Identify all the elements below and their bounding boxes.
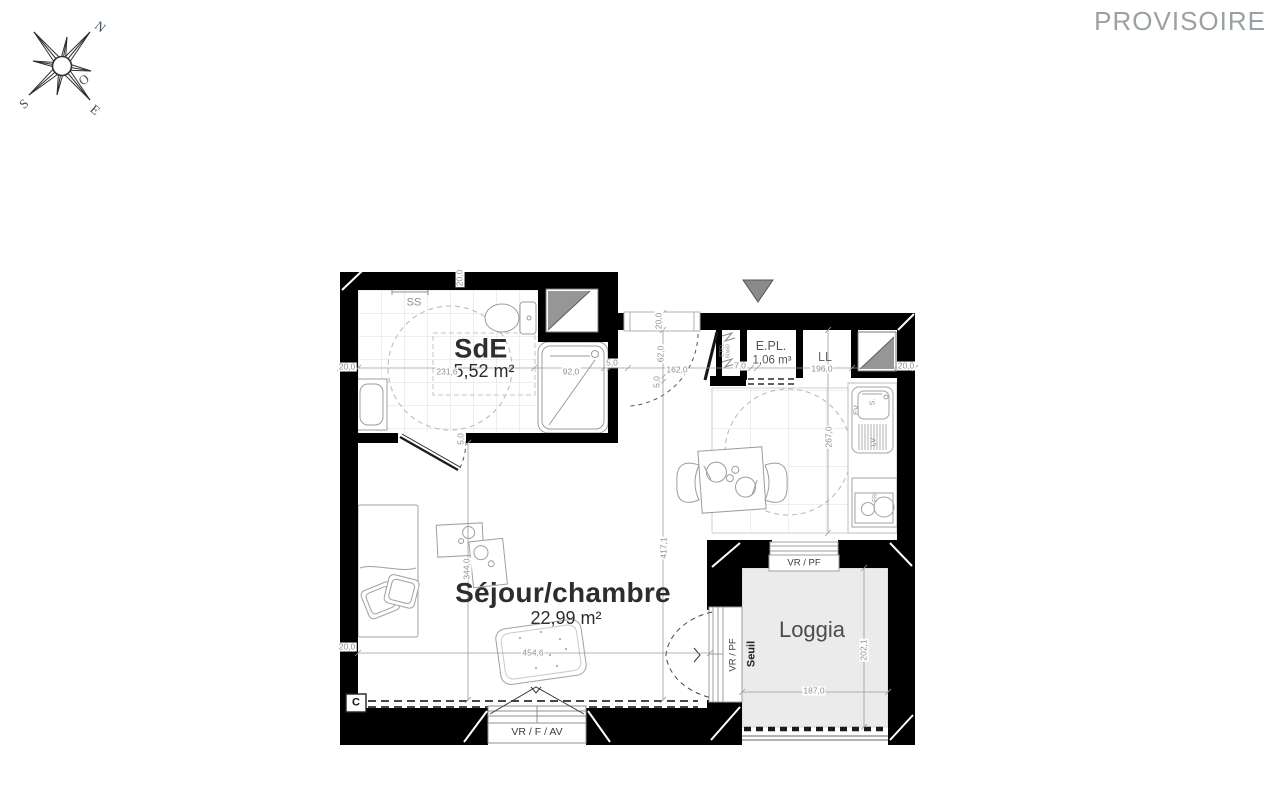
sde-area-label: 5,52 m²: [453, 362, 514, 380]
dim-entry-depth: 62,0: [657, 345, 666, 364]
sejour-room-label: Séjour/chambre: [455, 579, 671, 607]
dim-loggia-width: 187,0: [802, 687, 825, 696]
dim-kitchen-width: 196,0: [810, 365, 833, 374]
dim-shower-width: 92,0: [562, 368, 581, 377]
epl-label: E.PL.: [756, 340, 787, 353]
sink-label: EV: [852, 405, 860, 415]
sejour-area-label: 22,99 m²: [530, 609, 601, 627]
duct-sde: [546, 289, 598, 332]
threshold-label: Seuil: [747, 641, 758, 667]
loggia-window-label: VR / PF: [787, 558, 820, 568]
epl-front-dashes: [748, 379, 796, 384]
dining-table: [698, 447, 766, 513]
dim-shower-gap: 5,0: [605, 359, 619, 368]
page: { "watermark": "PROVISOIRE", "compass": …: [0, 0, 1276, 800]
shower: [538, 342, 608, 433]
bed: [358, 505, 420, 637]
dim-hall-top: 20,0: [655, 312, 664, 331]
dim-sejour-left: 20,0: [338, 643, 357, 652]
dim-sejour-depth: 417,1: [660, 536, 669, 559]
dishwasher-label: LV: [869, 438, 877, 447]
convector-label: C: [352, 698, 360, 709]
dim-sejour-width: 454,6: [521, 649, 544, 658]
dim-sde-left: 20,0: [338, 363, 357, 372]
dim-shaft-width: 7,0: [733, 362, 747, 371]
dim-sejour-height: 344,0: [463, 557, 472, 580]
floor-plan-drawing: [0, 0, 1276, 800]
fridge-label: FRI: [873, 492, 879, 502]
dim-wall-top: 20,0: [456, 269, 465, 288]
epl-volume-label: 1,06 m³: [753, 355, 792, 367]
entrance-arrow-icon: [743, 280, 773, 302]
ll-label: LL: [818, 351, 832, 364]
duct-kitchen: [858, 332, 896, 371]
loggia-railing: [742, 729, 888, 740]
dim-loggia-depth: 202,1: [860, 638, 869, 661]
dim-kitchen-depth: 267,0: [825, 425, 834, 448]
basin-label: S.: [870, 399, 877, 406]
loggia-room-label: Loggia: [779, 619, 845, 641]
dim-sde-width: 231,6: [435, 368, 458, 377]
fridge-hob-unit: [852, 478, 897, 527]
dim-hall-gap: 5,0: [653, 375, 662, 389]
towel-rail-label: SS: [407, 298, 422, 309]
sde-room-label: SdE: [454, 336, 507, 363]
toilet: [485, 302, 536, 334]
sejour-window-label: VR / F / AV: [511, 727, 562, 738]
dim-sde-door-gap: 5,0: [457, 432, 466, 446]
dim-hall-width: 162,0: [665, 366, 688, 375]
etel-size-label: 60x60: [727, 344, 732, 358]
dim-wall-right: 20,0: [897, 362, 916, 371]
loggia-door-label: VR / PF: [728, 638, 738, 671]
